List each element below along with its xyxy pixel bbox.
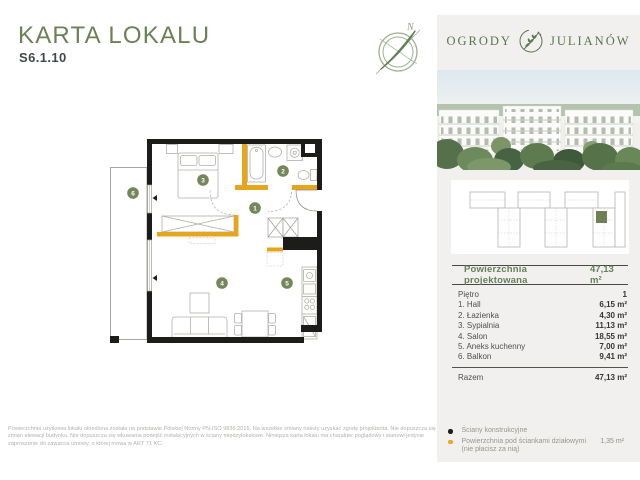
right-panel: OGRODY JULIANÓW: [437, 15, 640, 462]
table-row: 5. Aneks kuchenny 7,00 m²: [458, 342, 627, 352]
site-plan-card: [451, 180, 629, 254]
room-number-3: 3: [197, 174, 209, 186]
site-plan-unit-highlight: [596, 211, 607, 223]
room-number-2: 2: [277, 165, 289, 177]
site-plan: [451, 180, 629, 254]
brand-name-left: OGRODY: [446, 34, 511, 49]
compass-icon: N: [374, 12, 424, 76]
disclaimer-line: zaproszenie do zawarcia umowy, o której …: [8, 441, 436, 448]
bedroom-door-arc: [210, 190, 235, 215]
svg-text:4: 4: [220, 280, 224, 287]
legend-value: 1,35 m²: [600, 438, 630, 447]
page-title: KARTA LOKALU: [18, 22, 210, 50]
floor-row: Piętro 1: [458, 290, 627, 300]
floor-value: 1: [623, 290, 627, 300]
legend-label: Powierzchnia pod ściankami działowymi (n…: [462, 438, 587, 455]
bathroom-sink: [269, 147, 282, 157]
legend-item-partition: Powierzchnia pod ściankami działowymi (n…: [448, 438, 630, 455]
summary-row: Powierzchnia projektowana 47,13 m²: [452, 265, 628, 285]
wall-shaft-opening: [305, 144, 315, 153]
leaf-emblem-icon: [518, 28, 544, 54]
nightstand-right: [219, 145, 233, 154]
floor-label: Piętro: [458, 290, 479, 300]
washing-machine: [287, 145, 303, 161]
room-label: 6. Balkon: [458, 352, 491, 362]
room-label: 1. Hall: [458, 300, 481, 310]
room-label: 4. Salon: [458, 332, 487, 342]
total-value: 47,13 m²: [595, 373, 627, 382]
svg-text:1: 1: [253, 205, 257, 212]
room-number-6: 6: [127, 187, 139, 199]
legend-label: Ściany konstrukcyjne: [462, 427, 528, 436]
room-number-5: 5: [281, 277, 293, 289]
structural-walls: [147, 139, 322, 343]
svg-text:2: 2: [281, 168, 285, 175]
room-value: 7,00 m²: [599, 342, 627, 352]
legend-label-line1: Powierzchnia pod ściankami działowymi: [462, 438, 587, 445]
toilet: [298, 170, 317, 181]
area-table: Powierzchnia projektowana 47,13 m² Piętr…: [452, 265, 628, 382]
legend-item-structural: Ściany konstrukcyjne: [448, 427, 630, 436]
total-row: Razem 47,13 m²: [452, 367, 628, 382]
room-value: 11,13 m²: [595, 321, 627, 331]
total-label: Razem: [458, 373, 483, 382]
table-row: 1. Hall 6,15 m²: [458, 300, 627, 310]
legend-dot-orange: [448, 440, 453, 445]
floor-plan: 1 2 3 4 5 6: [95, 110, 335, 360]
disclaimer-line: Powierzchnia użytkowa lokalu określona z…: [8, 426, 436, 433]
dresser: [189, 238, 215, 244]
room-label: 5. Aneks kuchenny: [458, 342, 525, 352]
disclaimer: Powierzchnia użytkowa lokalu określona z…: [8, 426, 436, 448]
bed: [178, 153, 218, 198]
svg-text:3: 3: [201, 177, 205, 184]
room-label: 2. Łazienka: [458, 311, 499, 321]
kitchen-upper-cabinet: [267, 253, 283, 267]
room-value: 6,15 m²: [599, 300, 627, 310]
wardrobe: [162, 216, 234, 232]
brand-name-right: JULIANÓW: [550, 34, 631, 49]
room-value: 18,55 m²: [595, 332, 627, 342]
table-row: 2. Łazienka 4,30 m²: [458, 311, 627, 321]
room-value: 9,41 m²: [599, 352, 627, 362]
dining-set: [235, 311, 276, 337]
nightstand-left: [167, 145, 178, 154]
svg-text:6: 6: [131, 190, 135, 197]
summary-value: 47,13 m²: [590, 264, 627, 286]
room-list: Piętro 1 1. Hall 6,15 m² 2. Łazienka 4,3…: [452, 285, 628, 363]
svg-text:5: 5: [285, 280, 289, 287]
summary-label: Powierzchnia projektowana: [464, 264, 590, 286]
brand-logo: OGRODY JULIANÓW: [437, 28, 640, 54]
legend-dot-black: [448, 429, 453, 434]
coffee-table: [190, 293, 209, 313]
bathtub: [248, 145, 266, 182]
shaft-boxes: [268, 218, 298, 237]
bathroom-door-arc: [268, 188, 292, 212]
room-label: 3. Sypialnia: [458, 321, 499, 331]
legend-label-line2: (nie płacisz za nią): [462, 446, 520, 453]
room-number-4: 4: [216, 277, 228, 289]
table-row: 4. Salon 18,55 m²: [458, 332, 627, 342]
disclaimer-line: zmian elewacji budynku. Nie dopuszcza si…: [8, 433, 436, 440]
room-number-1: 1: [249, 202, 261, 214]
room-value: 4,30 m²: [599, 311, 627, 321]
page: KARTA LOKALU S6.1.10 N: [0, 0, 640, 480]
entrance-door: [296, 190, 317, 211]
table-row: 6. Balkon 9,41 m²: [458, 352, 627, 362]
compass-north-label: N: [406, 22, 415, 33]
unit-id: S6.1.10: [19, 50, 67, 65]
building-photo: [437, 70, 640, 170]
table-row: 3. Sypialnia 11,13 m²: [458, 321, 627, 331]
legend: Ściany konstrukcyjne Powierzchnia pod śc…: [448, 427, 630, 457]
